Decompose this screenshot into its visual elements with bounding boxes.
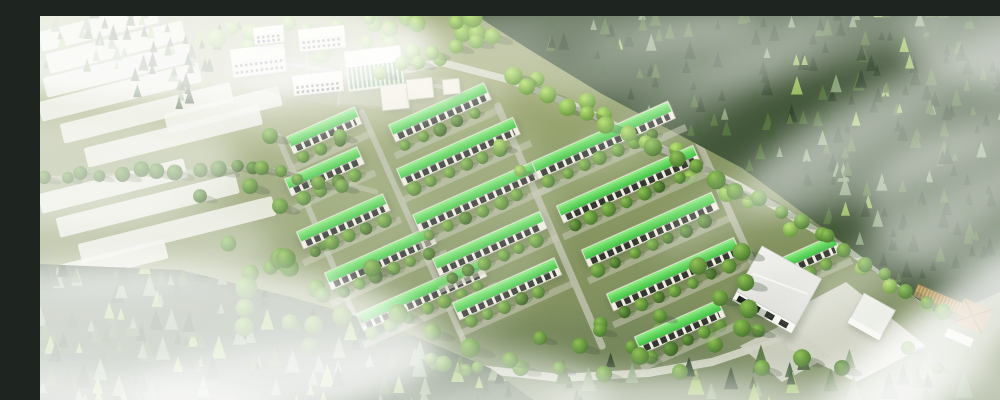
deciduous-tree (580, 106, 595, 121)
deciduous-tree (794, 213, 810, 229)
deciduous-tree (898, 284, 913, 299)
farm-campus-aerial-rendering (40, 16, 1000, 400)
deciduous-tree (820, 229, 834, 243)
deciduous-tree (533, 331, 547, 345)
deciduous-tree (793, 349, 811, 367)
deciduous-tree (739, 300, 758, 319)
deciduous-tree (712, 290, 728, 306)
scene-canvas (40, 16, 1000, 400)
deciduous-tree (631, 347, 649, 365)
deciduous-tree (669, 151, 685, 167)
deciduous-tree (653, 309, 667, 323)
deciduous-tree (559, 99, 577, 117)
deciduous-tree (572, 338, 588, 354)
deciduous-tree (689, 159, 703, 173)
deciduous-tree (593, 323, 607, 337)
deciduous-tree (689, 257, 707, 275)
deciduous-tree (737, 274, 754, 291)
deciduous-tree (733, 319, 751, 337)
deciduous-tree (733, 243, 751, 261)
